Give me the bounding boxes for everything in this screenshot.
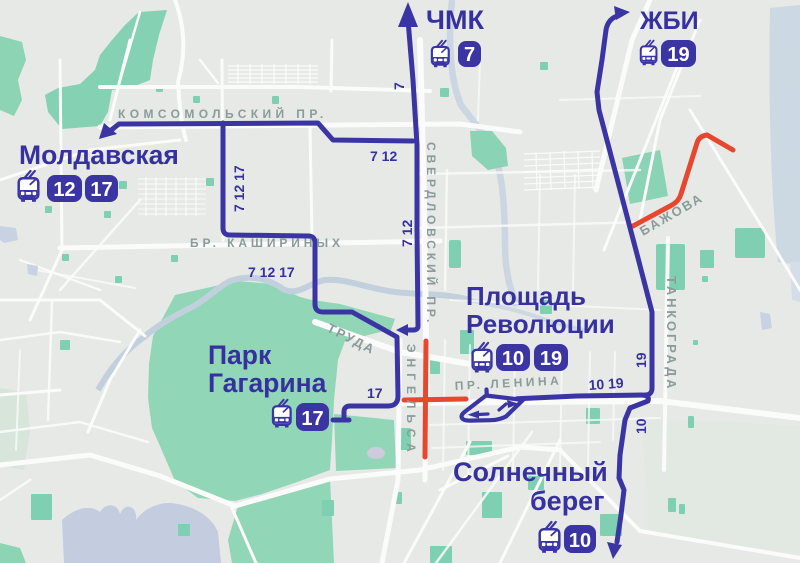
svg-text:БР. КАШИРИНЫХ: БР. КАШИРИНЫХ — [190, 236, 344, 250]
svg-text:Молдавская: Молдавская — [19, 140, 179, 170]
svg-text:7 12 17: 7 12 17 — [248, 264, 295, 280]
svg-text:ЖБИ: ЖБИ — [639, 7, 699, 35]
svg-text:10 19: 10 19 — [588, 375, 624, 393]
svg-text:7: 7 — [464, 44, 475, 66]
svg-text:ЭНГЕЛЬСА: ЭНГЕЛЬСА — [404, 344, 418, 458]
svg-text:СВЕРДЛОВСКИЙ ПР.: СВЕРДЛОВСКИЙ ПР. — [424, 142, 439, 326]
svg-text:берег: берег — [530, 486, 604, 516]
svg-text:19: 19 — [667, 44, 689, 66]
svg-text:Революции: Революции — [466, 309, 615, 339]
svg-text:7: 7 — [391, 82, 407, 90]
svg-text:17: 17 — [90, 179, 112, 201]
svg-text:19: 19 — [633, 352, 649, 368]
svg-text:Гагарина: Гагарина — [208, 368, 327, 398]
svg-text:17: 17 — [367, 385, 383, 401]
svg-text:7 12: 7 12 — [399, 220, 415, 247]
svg-text:Парк: Парк — [208, 340, 272, 370]
svg-text:7 12: 7 12 — [370, 148, 397, 164]
svg-text:17: 17 — [301, 408, 323, 430]
svg-text:7 12 17: 7 12 17 — [231, 165, 247, 212]
svg-text:Площадь: Площадь — [466, 281, 586, 311]
svg-text:12: 12 — [53, 179, 75, 201]
svg-text:ЧМК: ЧМК — [426, 5, 484, 35]
svg-text:19: 19 — [540, 348, 562, 370]
svg-text:10: 10 — [569, 530, 591, 552]
svg-text:10: 10 — [502, 348, 524, 370]
svg-text:ТАНКОГРАДА: ТАНКОГРАДА — [664, 276, 679, 391]
svg-text:10: 10 — [633, 418, 649, 434]
svg-text:КОМСОМОЛЬСКИЙ ПР.: КОМСОМОЛЬСКИЙ ПР. — [118, 106, 328, 121]
svg-text:Солнечный: Солнечный — [453, 457, 608, 487]
